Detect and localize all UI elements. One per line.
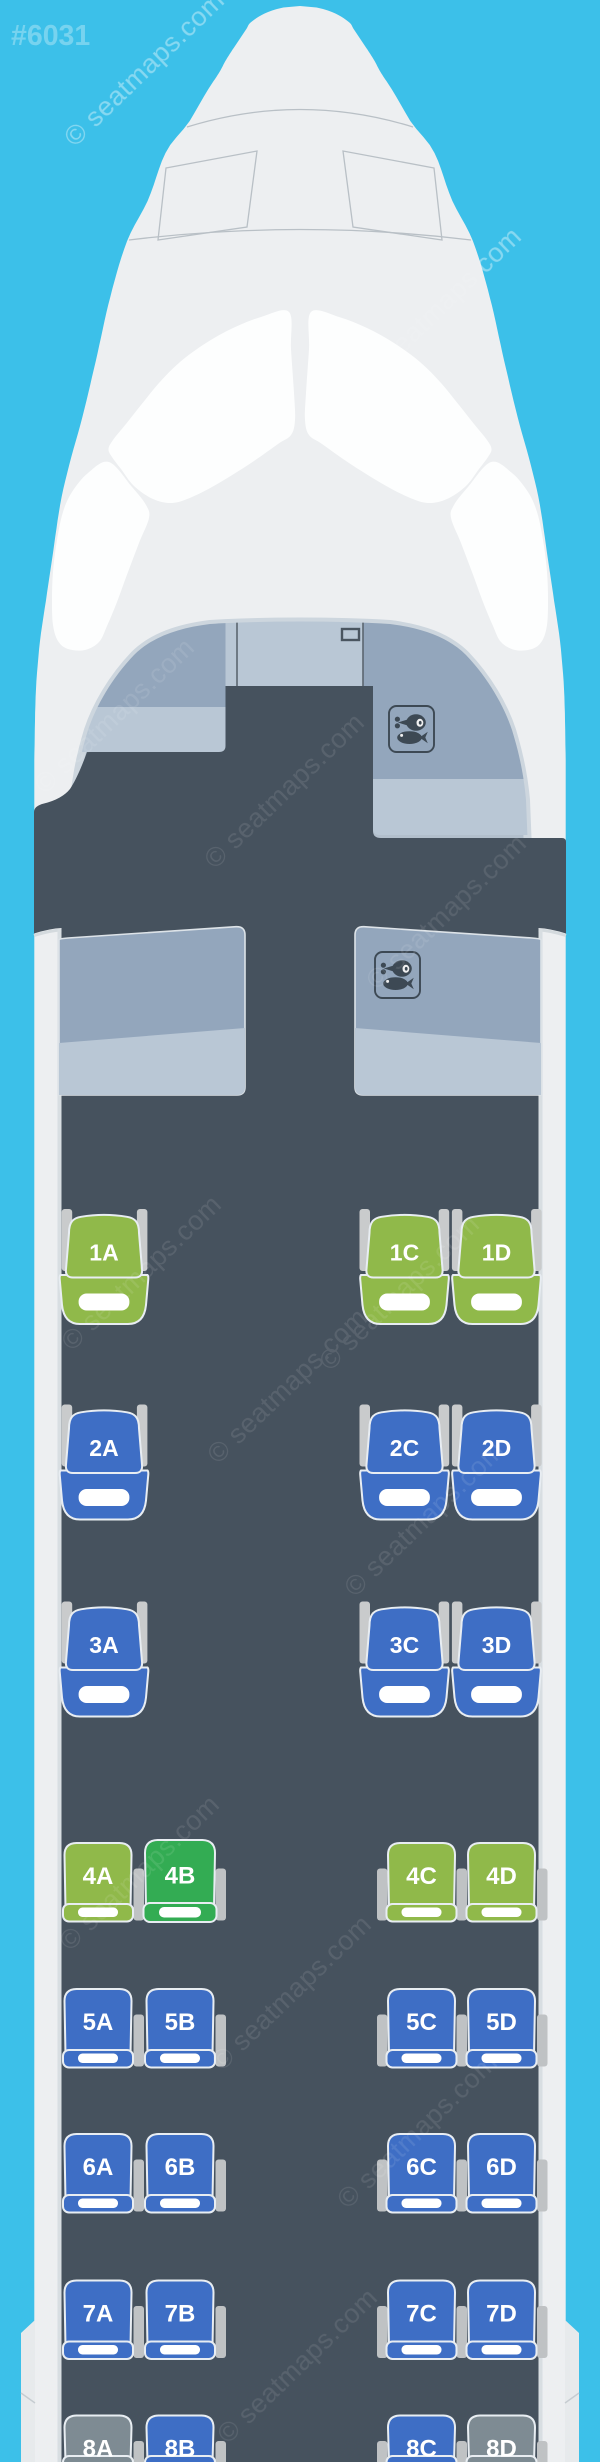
svg-text:5A: 5A	[83, 2009, 114, 2036]
svg-text:8A: 8A	[83, 2436, 114, 2462]
svg-text:1A: 1A	[89, 1240, 118, 1266]
svg-text:8B: 8B	[165, 2436, 196, 2462]
svg-text:6A: 6A	[83, 2154, 114, 2181]
svg-text:2A: 2A	[89, 1435, 118, 1461]
svg-text:8D: 8D	[486, 2436, 517, 2462]
svg-text:3A: 3A	[89, 1632, 118, 1658]
svg-text:3D: 3D	[482, 1632, 511, 1658]
svg-text:4D: 4D	[486, 1863, 517, 1890]
svg-text:4C: 4C	[406, 1863, 437, 1890]
svg-text:5D: 5D	[486, 2009, 517, 2036]
svg-text:7B: 7B	[165, 2301, 196, 2328]
svg-text:5B: 5B	[165, 2009, 196, 2036]
svg-text:3C: 3C	[390, 1632, 419, 1658]
svg-text:1D: 1D	[482, 1240, 511, 1266]
svg-text:6B: 6B	[165, 2154, 196, 2181]
svg-text:7D: 7D	[486, 2301, 517, 2328]
svg-text:7C: 7C	[406, 2301, 437, 2328]
svg-text:7A: 7A	[83, 2301, 114, 2328]
svg-text:6D: 6D	[486, 2154, 517, 2181]
svg-text:#6031: #6031	[11, 20, 90, 52]
svg-text:6C: 6C	[406, 2154, 437, 2181]
svg-text:8C: 8C	[406, 2436, 437, 2462]
svg-text:2C: 2C	[390, 1435, 419, 1461]
svg-text:4B: 4B	[165, 1863, 196, 1890]
svg-text:5C: 5C	[406, 2009, 437, 2036]
